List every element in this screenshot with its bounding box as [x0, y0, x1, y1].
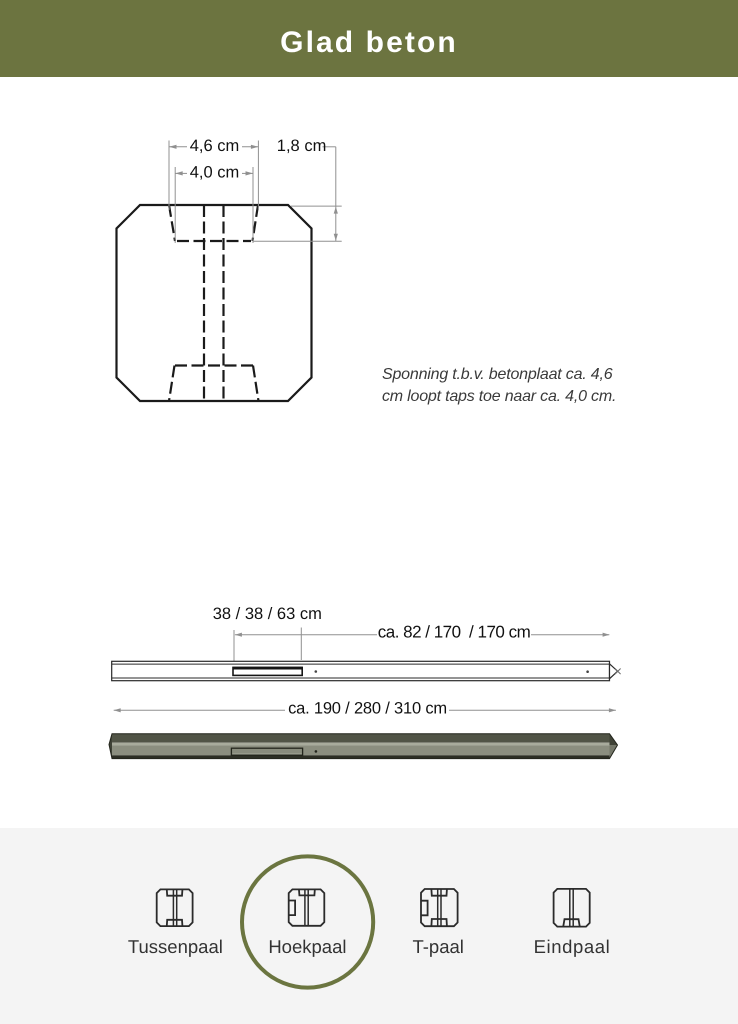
- svg-text:4,6 cm: 4,6 cm: [190, 137, 240, 155]
- svg-text:38 / 38 / 63 cm: 38 / 38 / 63 cm: [213, 605, 322, 623]
- svg-text:ca. 82 / 170 / 170 cm: ca. 82 / 170 / 170 cm: [378, 623, 531, 642]
- svg-text:Eindpaal: Eindpaal: [534, 936, 611, 957]
- svg-text:4,0 cm: 4,0 cm: [190, 164, 240, 182]
- svg-text:Hoekpaal: Hoekpaal: [268, 936, 346, 957]
- svg-text:ca. 190 / 280 / 310 cm: ca. 190 / 280 / 310 cm: [288, 700, 447, 718]
- svg-text:T-paal: T-paal: [412, 936, 463, 957]
- svg-text:Tussenpaal: Tussenpaal: [128, 936, 223, 957]
- svg-text:1,8 cm: 1,8 cm: [277, 137, 327, 155]
